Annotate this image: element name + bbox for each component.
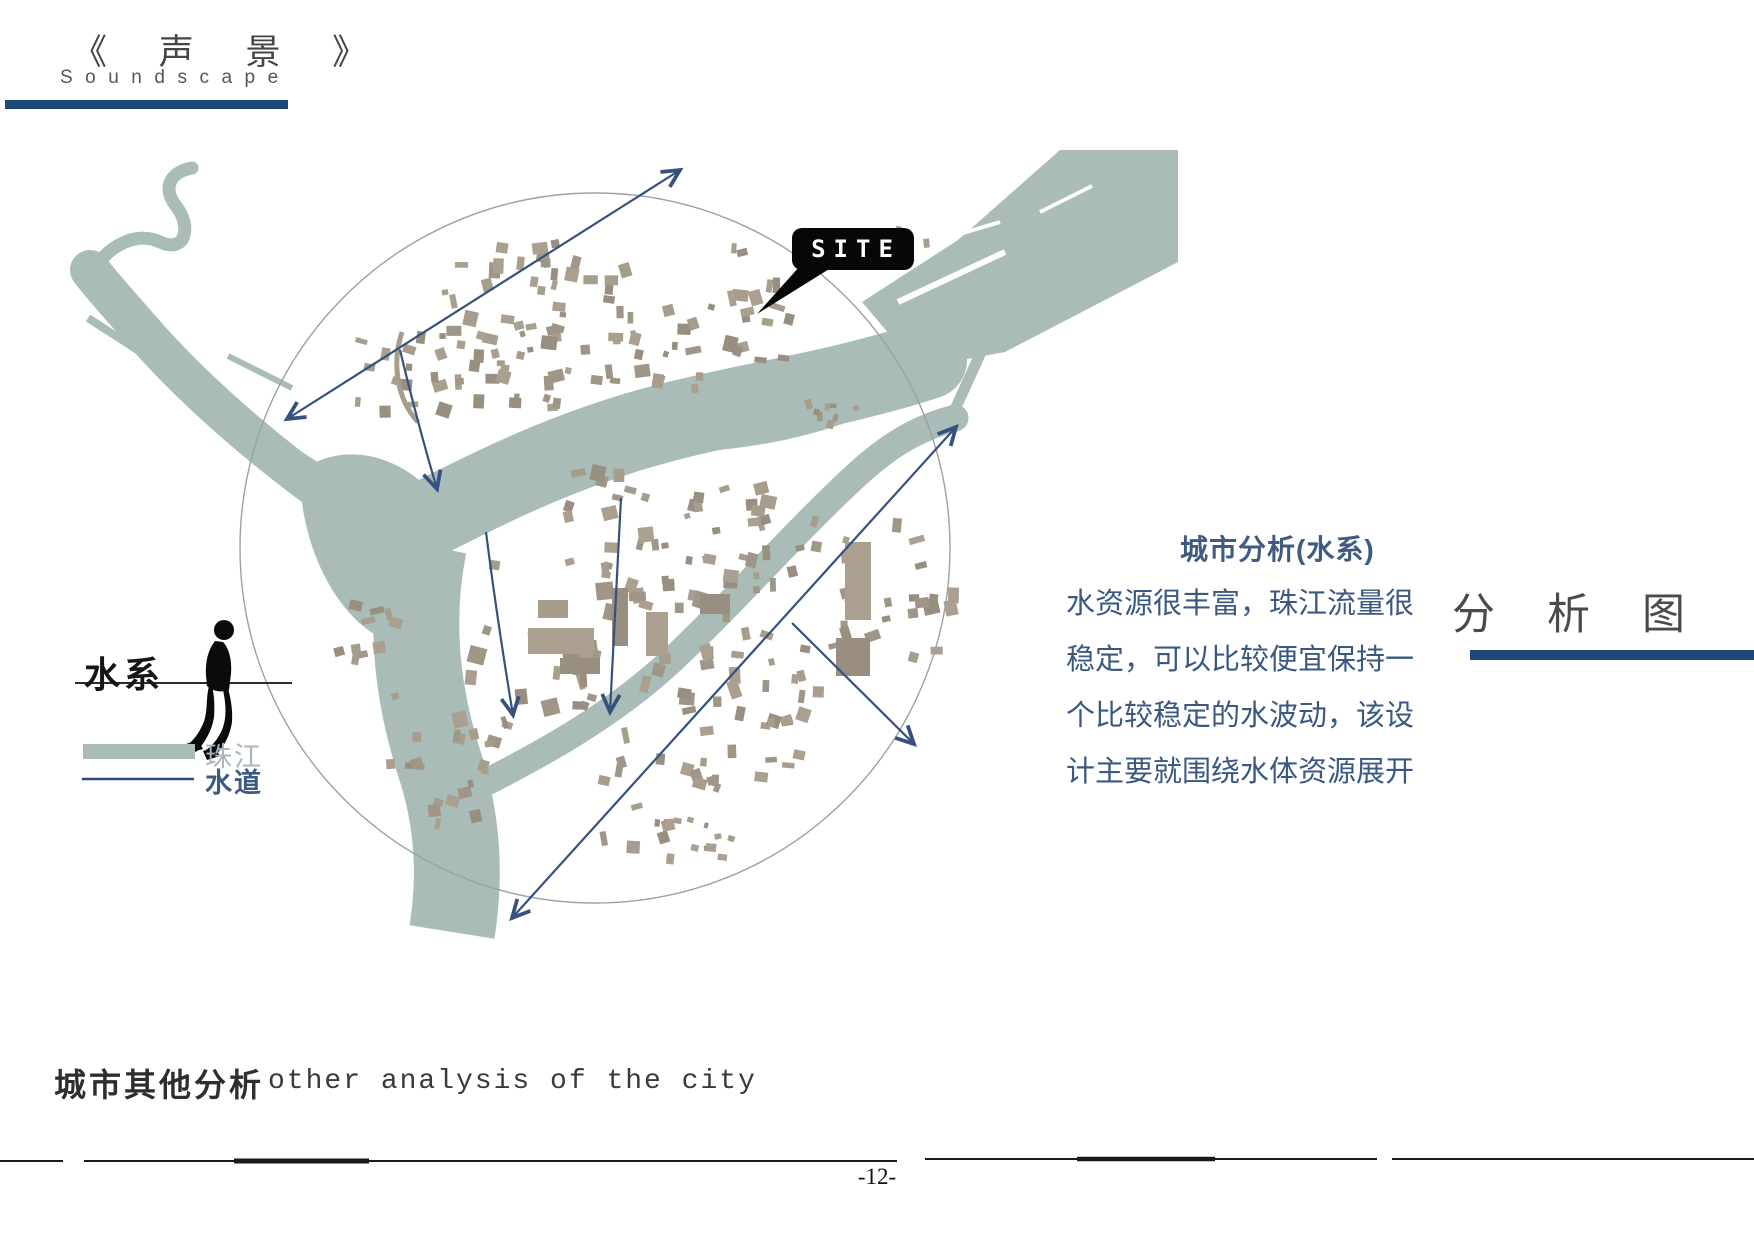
- building-block: [372, 641, 386, 654]
- building-block: [915, 561, 928, 570]
- arrow-down-2: [486, 532, 513, 715]
- building-block: [551, 280, 558, 290]
- analysis-line: 计主要就围绕水体资源展开: [1066, 754, 1426, 810]
- building-block: [691, 383, 699, 393]
- building-block: [703, 553, 717, 565]
- building-block: [685, 556, 693, 565]
- building-block: [662, 304, 675, 317]
- building-block: [727, 835, 735, 843]
- bottom-caption-chinese: 城市其他分析: [54, 1060, 264, 1106]
- building-block: [770, 578, 776, 592]
- building-block: [765, 757, 777, 763]
- building-block: [800, 645, 811, 654]
- river-northwest-branch: [90, 270, 340, 505]
- building-block: [631, 802, 643, 811]
- bottom-caption-english: other analysis of the city: [268, 1066, 757, 1097]
- building-block: [687, 816, 694, 823]
- canal-stub: [228, 356, 292, 388]
- building-block: [712, 527, 721, 535]
- analysis-paragraph: 水资源很丰富，珠江流量很 稳定，可以比较便宜保持一 个比较稳定的水波动，该设 计…: [1066, 586, 1426, 810]
- building-block: [661, 542, 669, 549]
- building-block: [473, 394, 484, 408]
- building-block: [748, 517, 762, 526]
- section-accent-bar: [1470, 650, 1754, 660]
- analysis-line: 稳定，可以比较便宜保持一: [1066, 642, 1426, 698]
- building-block: [782, 762, 795, 769]
- building-block: [583, 275, 598, 284]
- building-block: [753, 586, 760, 594]
- building-block: [766, 279, 774, 293]
- building-block: [491, 348, 500, 359]
- site-callout-label: SITE: [792, 228, 914, 270]
- building-block: [798, 690, 806, 704]
- building-block: [485, 740, 494, 747]
- building-block: [908, 651, 920, 663]
- building-block: [767, 717, 775, 727]
- building-block: [731, 651, 744, 659]
- building-block: [455, 378, 464, 385]
- building-block: [783, 313, 795, 326]
- pearl-river-water: [88, 150, 1178, 932]
- building-block: [736, 248, 748, 258]
- building-block: [532, 242, 549, 255]
- building-block: [624, 485, 637, 494]
- building-block: [496, 242, 509, 254]
- building-block: [527, 347, 534, 353]
- building-block: [621, 727, 630, 744]
- analysis-line: 个比较稳定的水波动，该设: [1066, 698, 1426, 754]
- building-block: [751, 505, 766, 517]
- building-block: [355, 337, 368, 345]
- building-block: [675, 603, 684, 613]
- arrow-down-1: [400, 350, 437, 489]
- building-block: [560, 312, 567, 318]
- building-block: [664, 819, 673, 826]
- soundscape-analysis-page: 《 声 景 》 Soundscape SITE 水系 珠江 水道 城市分析(水系…: [0, 0, 1754, 1240]
- building-block: [657, 830, 671, 844]
- building-block: [907, 608, 918, 619]
- building-block: [530, 276, 539, 287]
- building-block: [519, 330, 526, 337]
- building-block: [692, 777, 708, 791]
- building-block: [700, 594, 730, 614]
- building-block: [613, 334, 620, 344]
- building-block: [717, 853, 727, 860]
- building-block: [741, 627, 751, 641]
- building-block: [731, 243, 737, 253]
- water-system-label: 水系: [84, 646, 164, 698]
- building-block: [605, 364, 614, 379]
- building-block: [795, 706, 811, 723]
- section-title-analysis-diagram: 分析图: [1452, 580, 1737, 642]
- building-block: [501, 314, 515, 324]
- analysis-heading: 城市分析(水系): [1180, 528, 1375, 568]
- building-block: [553, 666, 561, 680]
- building-block: [748, 289, 764, 307]
- building-block: [813, 686, 824, 698]
- building-block: [719, 484, 730, 493]
- building-block: [550, 268, 558, 281]
- building-block: [881, 615, 890, 623]
- building-block: [451, 711, 468, 729]
- building-block: [572, 701, 583, 710]
- building-block: [456, 340, 465, 349]
- river-meander: [95, 168, 192, 268]
- building-block: [473, 349, 484, 363]
- building-block: [616, 306, 623, 318]
- building-block: [634, 349, 644, 360]
- building-block: [626, 840, 640, 853]
- building-block: [762, 680, 769, 692]
- building-block: [646, 612, 668, 656]
- building-block: [610, 377, 621, 384]
- building-block: [778, 354, 790, 361]
- building-block: [540, 335, 557, 350]
- building-block: [761, 318, 773, 327]
- building-block: [515, 688, 528, 705]
- building-block: [587, 693, 598, 702]
- building-block: [811, 541, 823, 553]
- building-block: [603, 295, 615, 304]
- building-block: [439, 333, 445, 339]
- building-block: [601, 505, 618, 521]
- building-block: [628, 312, 634, 324]
- building-block: [564, 367, 571, 375]
- building-block: [406, 363, 413, 371]
- building-block: [590, 375, 603, 385]
- page-title-english: Soundscape: [60, 67, 291, 89]
- building-block: [604, 542, 618, 553]
- building-block: [629, 592, 646, 602]
- building-block: [449, 294, 458, 309]
- building-block: [929, 593, 939, 601]
- building-block: [640, 492, 650, 502]
- building-block: [700, 758, 707, 767]
- legend-zhujiang-swatch: [83, 744, 195, 759]
- building-block: [563, 510, 574, 523]
- building-block: [693, 492, 704, 504]
- building-block: [605, 275, 618, 285]
- building-block: [699, 643, 714, 661]
- building-block: [552, 398, 561, 409]
- footer-rule: [0, 1159, 1754, 1161]
- building-block: [914, 597, 929, 609]
- river-south-channel: [416, 545, 457, 932]
- building-block: [355, 397, 361, 407]
- building-block: [500, 364, 510, 375]
- building-block: [682, 706, 697, 715]
- building-block: [580, 344, 590, 354]
- building-block: [754, 356, 767, 363]
- building-block: [696, 372, 703, 380]
- building-block: [908, 535, 925, 546]
- header-accent-bar: [5, 100, 288, 109]
- building-block: [441, 289, 448, 296]
- building-block: [465, 670, 478, 686]
- building-block: [700, 726, 714, 736]
- building-block: [703, 822, 708, 829]
- building-block: [684, 513, 691, 520]
- building-block: [677, 687, 692, 699]
- building-block: [705, 843, 716, 852]
- building-block: [673, 817, 682, 824]
- building-block: [768, 658, 775, 666]
- building-block: [762, 545, 771, 560]
- building-block: [467, 645, 488, 666]
- building-block: [538, 600, 568, 618]
- canal-diagonal: [88, 318, 338, 480]
- building-block: [541, 697, 561, 717]
- building-block: [431, 372, 439, 383]
- building-block: [654, 819, 660, 827]
- building-block: [638, 599, 653, 611]
- building-block: [525, 323, 536, 331]
- building-block: [707, 303, 715, 310]
- building-block: [740, 307, 755, 318]
- building-block: [513, 320, 524, 330]
- building-block: [435, 401, 452, 418]
- building-block: [615, 763, 624, 777]
- building-block: [685, 346, 702, 356]
- analysis-line: 水资源很丰富，珠江流量很: [1066, 586, 1426, 642]
- building-block: [509, 397, 522, 408]
- building-block: [948, 587, 959, 603]
- building-block: [753, 481, 769, 496]
- building-block: [516, 351, 525, 360]
- building-block: [544, 376, 554, 391]
- building-block: [722, 614, 730, 623]
- building-block: [482, 625, 492, 636]
- building-block: [462, 310, 479, 328]
- building-block: [455, 262, 468, 268]
- building-block: [528, 628, 594, 654]
- building-block: [598, 775, 611, 786]
- building-block: [542, 394, 551, 403]
- building-block: [333, 646, 345, 657]
- building-block: [661, 576, 669, 584]
- building-block: [923, 238, 930, 248]
- building-block: [595, 581, 614, 600]
- building-block: [541, 259, 551, 268]
- building-block: [634, 364, 651, 378]
- building-block: [613, 469, 624, 482]
- building-block: [672, 342, 678, 350]
- page-number: -12-: [827, 1164, 927, 1190]
- building-block: [412, 732, 421, 742]
- building-block: [734, 706, 745, 722]
- building-block: [662, 351, 669, 358]
- building-block: [493, 258, 504, 274]
- building-block: [666, 853, 675, 864]
- building-block: [560, 658, 600, 674]
- building-block: [714, 833, 722, 840]
- building-block: [931, 647, 943, 655]
- building-block: [446, 326, 461, 336]
- building-block: [564, 557, 574, 566]
- building-block: [754, 771, 768, 782]
- building-block: [618, 262, 633, 278]
- building-block: [727, 745, 736, 759]
- building-block: [552, 302, 566, 312]
- legend-item-shuidao: 水道: [205, 761, 263, 800]
- building-block: [793, 749, 806, 760]
- building-block: [599, 831, 608, 846]
- building-block: [884, 597, 893, 607]
- building-block: [690, 844, 699, 852]
- building-block: [787, 565, 798, 578]
- building-block: [652, 373, 665, 389]
- building-block: [723, 569, 739, 584]
- building-block: [434, 347, 447, 361]
- building-block: [379, 405, 390, 417]
- building-block: [713, 696, 721, 706]
- building-block: [386, 759, 395, 769]
- building-block: [892, 518, 902, 533]
- building-block: [537, 286, 546, 295]
- building-block: [845, 542, 871, 620]
- building-block: [637, 526, 654, 543]
- building-block: [564, 267, 580, 283]
- building-block: [753, 572, 759, 579]
